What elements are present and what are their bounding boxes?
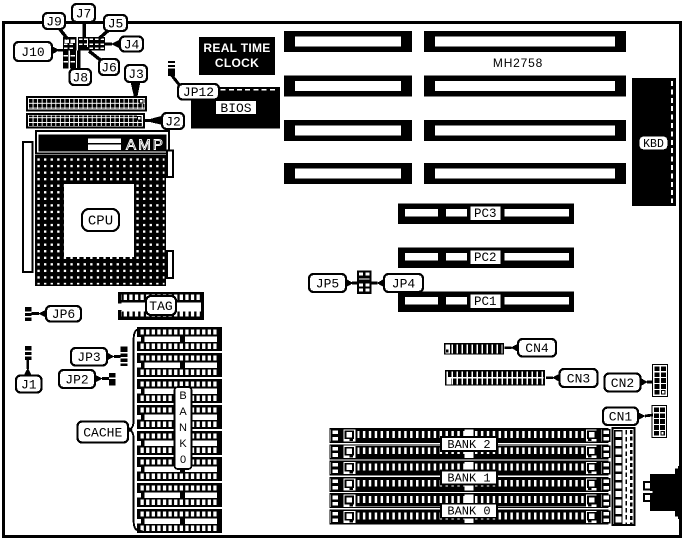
svg-text:A: A bbox=[179, 406, 187, 418]
svg-text:BANK 2: BANK 2 bbox=[447, 438, 490, 452]
svg-text:CLOCK: CLOCK bbox=[215, 56, 259, 70]
svg-text:0: 0 bbox=[180, 454, 186, 466]
svg-text:CN4: CN4 bbox=[525, 341, 549, 356]
svg-text:BANK 0: BANK 0 bbox=[447, 505, 490, 519]
svg-text:CN2: CN2 bbox=[611, 376, 634, 391]
svg-text:BIOS: BIOS bbox=[220, 101, 251, 116]
svg-text:CN3: CN3 bbox=[567, 371, 590, 386]
svg-text:CACHE: CACHE bbox=[83, 425, 122, 440]
svg-text:J6: J6 bbox=[101, 60, 117, 75]
svg-text:J4: J4 bbox=[124, 37, 140, 52]
svg-text:REAL TIME: REAL TIME bbox=[203, 41, 270, 55]
svg-text:JP4: JP4 bbox=[392, 276, 416, 291]
svg-text:AMP: AMP bbox=[126, 137, 165, 154]
svg-text:K: K bbox=[179, 438, 187, 450]
svg-text:J1: J1 bbox=[21, 377, 37, 392]
svg-text:J2: J2 bbox=[165, 114, 181, 129]
svg-text:J7: J7 bbox=[76, 6, 92, 21]
svg-text:J5: J5 bbox=[108, 16, 124, 31]
svg-text:JP2: JP2 bbox=[65, 372, 88, 387]
svg-text:JP6: JP6 bbox=[52, 307, 75, 322]
svg-text:N: N bbox=[179, 422, 187, 434]
svg-text:JP12: JP12 bbox=[183, 85, 214, 100]
svg-text:PC3: PC3 bbox=[474, 207, 497, 221]
svg-text:B: B bbox=[179, 390, 186, 402]
svg-text:JP5: JP5 bbox=[316, 276, 339, 291]
svg-text:PC1: PC1 bbox=[474, 295, 497, 309]
svg-text:J3: J3 bbox=[128, 67, 144, 82]
svg-text:TAG: TAG bbox=[149, 299, 172, 314]
svg-text:J8: J8 bbox=[72, 70, 88, 85]
svg-text:MH2758: MH2758 bbox=[493, 56, 543, 70]
svg-text:J10: J10 bbox=[21, 45, 44, 60]
svg-text:PC2: PC2 bbox=[474, 251, 497, 265]
svg-text:JP3: JP3 bbox=[77, 350, 100, 365]
svg-text:BANK 1: BANK 1 bbox=[447, 471, 490, 485]
svg-text:J9: J9 bbox=[46, 14, 62, 29]
svg-text:KBD: KBD bbox=[643, 138, 664, 151]
svg-text:CPU: CPU bbox=[88, 213, 113, 229]
svg-text:CN1: CN1 bbox=[609, 410, 633, 425]
